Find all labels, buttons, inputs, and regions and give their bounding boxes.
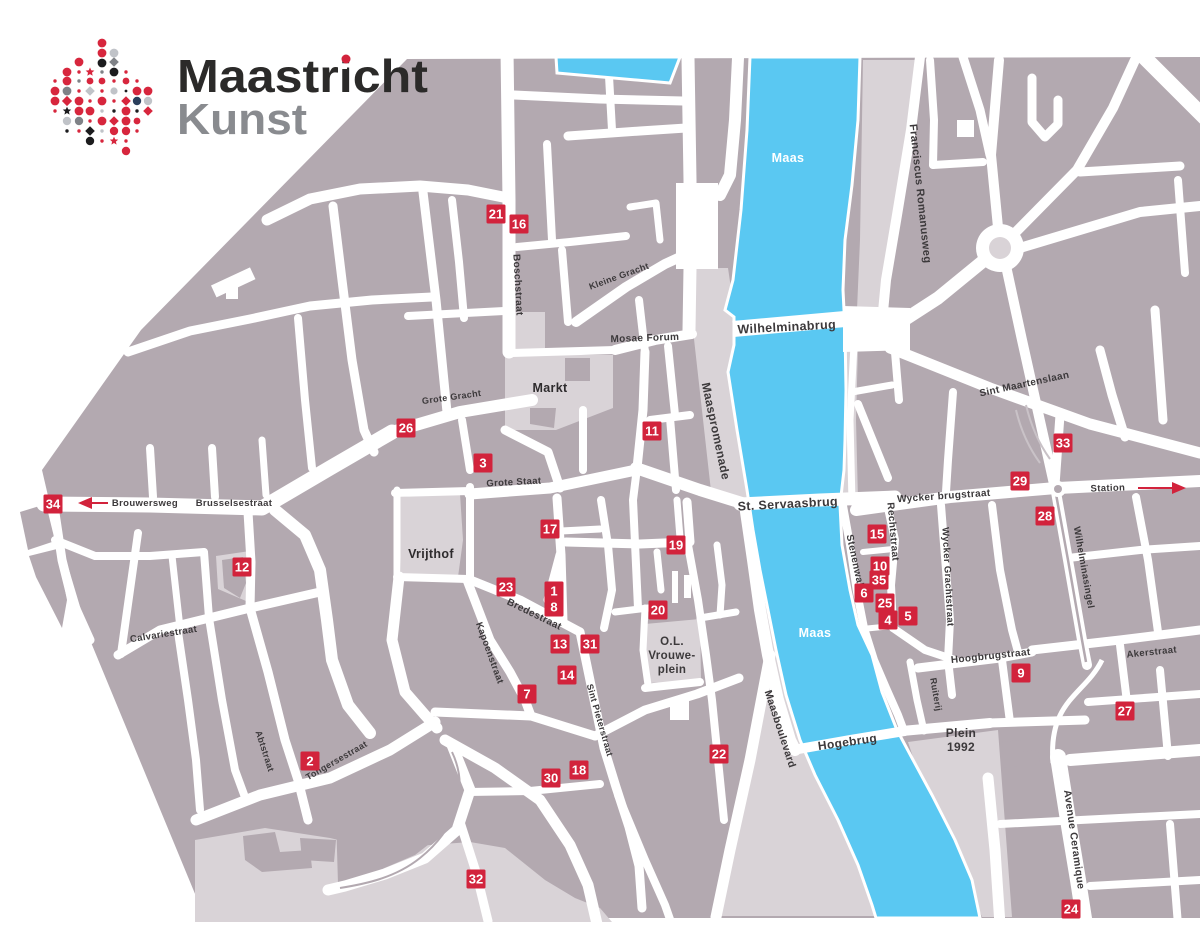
svg-text:27: 27 <box>1118 704 1132 719</box>
svg-text:15: 15 <box>870 527 884 542</box>
svg-text:Maas: Maas <box>772 151 805 165</box>
svg-text:26: 26 <box>399 421 413 436</box>
svg-text:9: 9 <box>1017 666 1024 681</box>
svg-text:28: 28 <box>1038 509 1052 524</box>
svg-text:3: 3 <box>479 456 486 471</box>
svg-text:20: 20 <box>651 603 665 618</box>
svg-text:11: 11 <box>645 424 659 439</box>
svg-text:Vrouwe-: Vrouwe- <box>648 650 695 662</box>
svg-text:Plein: Plein <box>946 726 976 740</box>
svg-text:plein: plein <box>658 664 687 676</box>
svg-text:Brusselsestraat: Brusselsestraat <box>196 498 273 509</box>
svg-text:Markt: Markt <box>532 381 568 395</box>
svg-text:14: 14 <box>560 668 575 683</box>
svg-text:6: 6 <box>860 586 867 601</box>
svg-text:O.L.: O.L. <box>660 636 684 648</box>
svg-text:18: 18 <box>572 763 586 778</box>
svg-text:22: 22 <box>712 747 726 762</box>
svg-text:7: 7 <box>523 687 530 702</box>
svg-text:35: 35 <box>872 573 886 588</box>
svg-text:23: 23 <box>499 580 513 595</box>
svg-text:31: 31 <box>583 637 597 652</box>
svg-text:Station: Station <box>1090 482 1125 494</box>
svg-text:29: 29 <box>1013 474 1027 489</box>
svg-text:33: 33 <box>1056 436 1070 451</box>
svg-text:13: 13 <box>553 637 567 652</box>
svg-text:1: 1 <box>550 584 557 599</box>
svg-text:19: 19 <box>669 538 683 553</box>
svg-text:32: 32 <box>469 872 483 887</box>
svg-text:8: 8 <box>550 600 557 615</box>
svg-text:5: 5 <box>904 609 911 624</box>
svg-text:24: 24 <box>1064 902 1079 917</box>
svg-text:4: 4 <box>884 613 892 628</box>
svg-text:Vrijthof: Vrijthof <box>408 547 454 561</box>
svg-text:17: 17 <box>543 522 557 537</box>
svg-text:34: 34 <box>46 497 61 512</box>
svg-text:21: 21 <box>489 207 503 222</box>
svg-text:25: 25 <box>878 596 892 611</box>
svg-text:12: 12 <box>235 560 249 575</box>
svg-text:16: 16 <box>512 217 526 232</box>
svg-text:2: 2 <box>306 754 313 769</box>
svg-text:Brouwersweg: Brouwersweg <box>112 498 178 509</box>
svg-text:30: 30 <box>544 771 558 786</box>
svg-text:Maas: Maas <box>799 626 832 640</box>
svg-text:Kunst: Kunst <box>177 95 307 144</box>
svg-text:1992: 1992 <box>947 740 975 754</box>
